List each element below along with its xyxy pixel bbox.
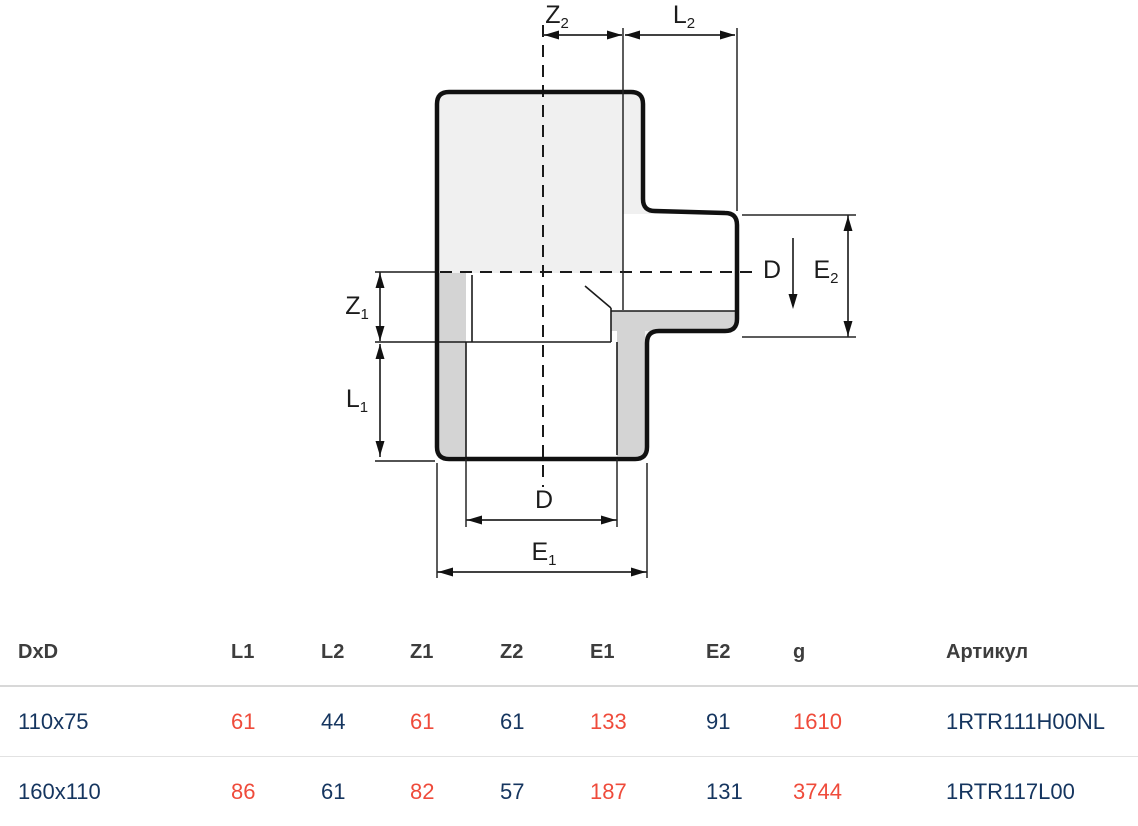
cell-article: 1RTR111H00NL	[928, 709, 1138, 735]
col-header-l1: L1	[213, 641, 303, 664]
label-l1: L1	[346, 387, 368, 415]
cell-dxd: 160x110	[0, 779, 213, 805]
cell-article: 1RTR117L00	[928, 779, 1138, 805]
cell-e1: 187	[572, 779, 688, 805]
cell-l1: 61	[213, 709, 303, 735]
fitting-drawing: Z2 L2 Z1 L1 D E1 D E2	[0, 0, 1138, 612]
label-l2: L2	[673, 3, 695, 31]
col-header-article: Артикул	[928, 641, 1138, 664]
table-row: 160x110 86 61 82 57 187 131 3744 1RTR117…	[0, 757, 1138, 826]
cell-e2: 131	[688, 779, 775, 805]
col-header-z2: Z2	[482, 641, 572, 664]
branch-socket-wall	[611, 311, 735, 331]
cell-z2: 61	[482, 709, 572, 735]
cell-e2: 91	[688, 709, 775, 735]
cell-z2: 57	[482, 779, 572, 805]
catalog-page: Z2 L2 Z1 L1 D E1 D E2 DxD L1 L2 Z1 Z2 E1…	[0, 0, 1138, 826]
col-header-g: g	[775, 641, 928, 664]
col-header-z1: Z1	[392, 641, 482, 664]
label-d-bottom: D	[535, 488, 553, 516]
label-z1: Z1	[345, 294, 369, 322]
label-d-side: D	[763, 258, 781, 286]
bore-transition	[611, 273, 623, 311]
cell-l2: 44	[303, 709, 392, 735]
table-row: 110x75 61 44 61 61 133 91 1610 1RTR111H0…	[0, 687, 1138, 757]
cell-g: 3744	[775, 779, 928, 805]
label-z2: Z2	[545, 3, 569, 31]
label-e2: E2	[813, 258, 838, 286]
spec-table-header: DxD L1 L2 Z1 Z2 E1 E2 g Артикул	[0, 620, 1138, 687]
cell-z1: 82	[392, 779, 482, 805]
right-socket-wall	[617, 311, 645, 456]
cell-l2: 61	[303, 779, 392, 805]
fitting-drawing-svg	[0, 0, 1138, 612]
label-e1: E1	[531, 540, 556, 568]
cell-z1: 61	[392, 709, 482, 735]
cell-dxd: 110x75	[0, 709, 213, 735]
col-header-l2: L2	[303, 641, 392, 664]
col-header-dxd: DxD	[0, 641, 213, 664]
left-socket-wall	[439, 273, 466, 456]
cell-e1: 133	[572, 709, 688, 735]
cell-g: 1610	[775, 709, 928, 735]
bottom-bore	[466, 273, 617, 457]
col-header-e2: E2	[688, 641, 775, 664]
col-header-e1: E1	[572, 641, 688, 664]
cell-l1: 86	[213, 779, 303, 805]
branch-bore	[623, 214, 735, 311]
spec-table: DxD L1 L2 Z1 Z2 E1 E2 g Артикул 110x75 6…	[0, 620, 1138, 826]
